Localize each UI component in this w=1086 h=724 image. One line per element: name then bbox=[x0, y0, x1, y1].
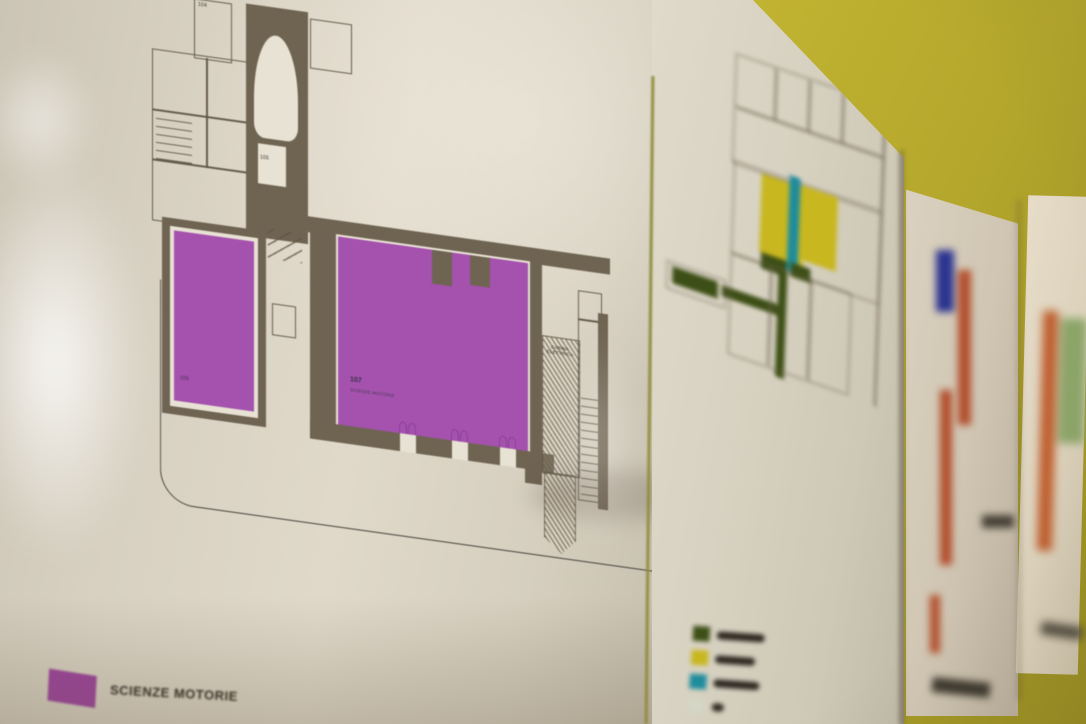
floor-plan-drawing-2 bbox=[726, 56, 936, 464]
legend-sheet-2 bbox=[687, 626, 766, 724]
sheet4-orange-strip bbox=[1037, 311, 1058, 551]
room-105-label: 105 bbox=[260, 155, 269, 161]
sheet3-blue-room bbox=[936, 250, 954, 312]
upper-right-room-outline bbox=[310, 18, 352, 74]
legend2-swatch-pale bbox=[687, 697, 705, 713]
gym-pillar-1 bbox=[432, 250, 452, 287]
floor-plan-sheet-2 bbox=[652, 0, 904, 724]
sheet3-dark-mark bbox=[982, 515, 1014, 528]
legend2-row-pale bbox=[687, 697, 760, 717]
legend2-row-yellow bbox=[691, 650, 764, 670]
floor-plan-sheet-4 bbox=[1016, 195, 1086, 674]
sheet4-green-room bbox=[1058, 318, 1086, 444]
sheet3-content bbox=[906, 150, 1018, 716]
staircase-treads bbox=[156, 111, 192, 164]
sheet3-red-strip-2 bbox=[940, 390, 952, 565]
room-104-label: 104 bbox=[198, 3, 207, 9]
sheet4-content bbox=[1016, 195, 1086, 674]
legend2-swatch-green bbox=[692, 626, 710, 642]
wing-partition-vertical bbox=[206, 58, 208, 168]
legend2-label-smudge bbox=[715, 655, 755, 666]
legend2-label-smudge bbox=[717, 631, 765, 642]
sheet3-red-strip-3 bbox=[930, 595, 940, 653]
sheet3-dark-bar bbox=[931, 677, 990, 698]
legend2-row-teal bbox=[689, 673, 762, 693]
sheet3-red-strip-1 bbox=[958, 270, 971, 425]
floor-plan-sheet-3 bbox=[906, 150, 1018, 716]
glare-highlight-mid bbox=[556, 280, 646, 600]
legend2-row-green bbox=[692, 626, 765, 646]
plan2-yellow-room-2 bbox=[800, 185, 838, 271]
stair-lines bbox=[268, 229, 302, 264]
legend2-swatch-teal bbox=[689, 673, 707, 689]
legend2-label-smudge bbox=[712, 703, 725, 712]
gym-pillar-2 bbox=[470, 255, 490, 288]
legend2-label-smudge bbox=[713, 679, 759, 690]
shadow-gap-sheet3-sheet4 bbox=[1015, 200, 1021, 700]
paper-bottom-shading bbox=[0, 596, 664, 724]
sheet4-dark-bar bbox=[1040, 621, 1083, 640]
legend2-swatch-yellow bbox=[691, 650, 709, 666]
photo-floor-plans-on-wall: 104 105 107 SCIENZE MOTORIE 106 bbox=[0, 0, 1086, 724]
wall-notch bbox=[258, 143, 286, 187]
shadow-gap-sheet2-sheet3 bbox=[897, 150, 904, 724]
